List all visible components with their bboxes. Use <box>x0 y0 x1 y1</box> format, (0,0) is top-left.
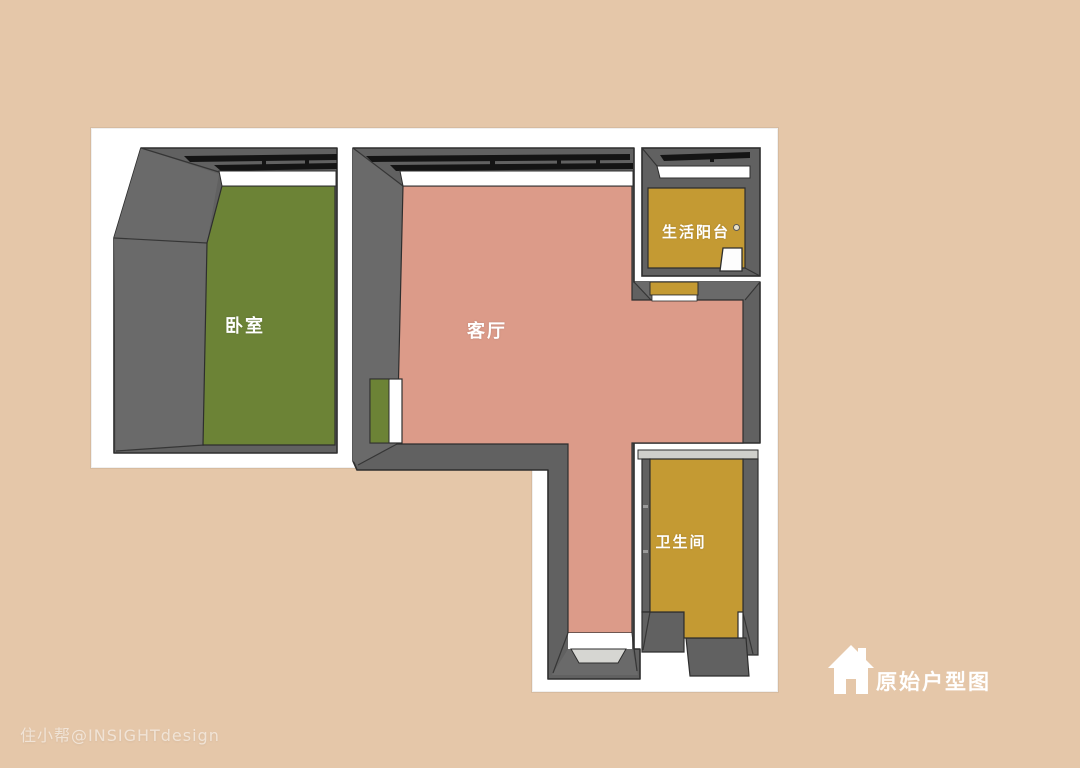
bedroom-window-mullion <box>305 157 309 167</box>
floor-plan: 卧室 客厅 生活阳台 卫生间 原始户型图 住小帮@INSIGHTdesign <box>0 0 1080 764</box>
balcony-doorway-sill <box>650 282 698 295</box>
caption-title: 原始户型图 <box>876 666 991 696</box>
balcony-window-sill <box>657 166 750 178</box>
bathroom-floor <box>650 459 743 638</box>
bedroom-window-sill <box>219 171 336 186</box>
washing-machine <box>720 248 742 271</box>
balcony-doorway-gap <box>652 295 697 301</box>
bathroom-right-wall <box>743 459 758 655</box>
balcony-block <box>642 148 760 276</box>
bathroom-wall-tick <box>643 505 648 508</box>
living-window-mullion <box>596 156 600 165</box>
bathroom-bottom-wall-chunk <box>686 638 749 676</box>
living-window-sill <box>400 171 633 186</box>
bedroom-window-mullion <box>262 156 266 166</box>
bathroom-wall-tick <box>643 550 648 553</box>
entrance-door-panel <box>571 649 626 663</box>
living-window-mullion <box>557 155 561 165</box>
floor-plan-svg <box>0 0 1080 764</box>
living-window-mullion <box>490 156 495 166</box>
house-icon <box>828 645 874 694</box>
balcony-label-dot <box>733 224 740 231</box>
watermark: 住小帮@INSIGHTdesign <box>20 722 220 746</box>
bedroom-block <box>114 148 337 453</box>
entrance-doorway <box>568 633 632 649</box>
bathroom-left-wall <box>642 459 650 612</box>
balcony-window-mullion <box>710 154 714 162</box>
bathroom-block <box>638 450 758 676</box>
bathroom-top-wall <box>638 450 758 459</box>
bedroom-floor <box>203 186 335 445</box>
bedroom-door-panel <box>370 379 389 443</box>
